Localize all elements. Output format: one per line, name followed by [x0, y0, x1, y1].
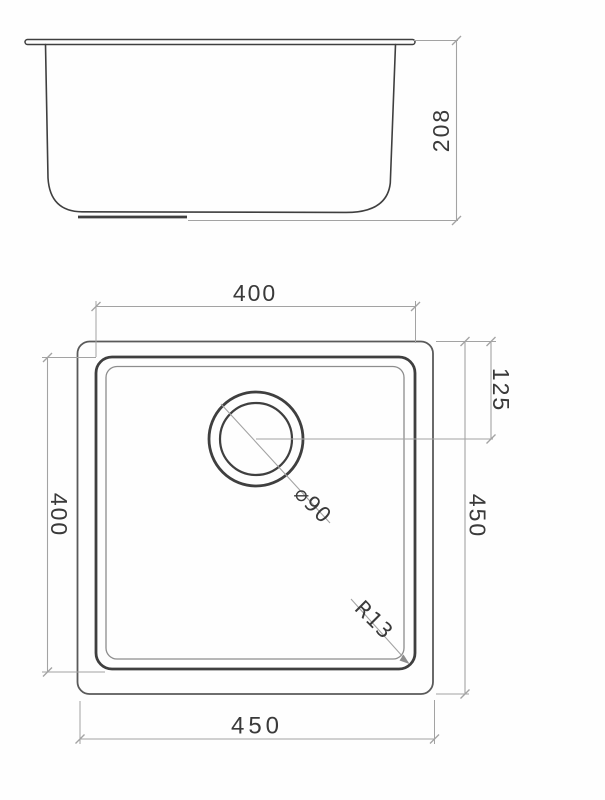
drain-offset-label: 125 [488, 368, 514, 412]
drawing-sheet: 208 [0, 0, 605, 800]
drain-diameter-label: ⌀90 [290, 482, 337, 529]
corner-radius-label: R13 [350, 596, 398, 644]
sink-body-outline [46, 45, 396, 213]
technical-drawing-canvas: 208 [0, 0, 605, 800]
depth-dimension-label: 208 [428, 108, 454, 152]
outer-width-label: 450 [231, 713, 283, 740]
outer-height-label: 450 [465, 494, 491, 538]
plan-view: 400 400 125 450 450 ⌀90 R13 [42, 280, 514, 744]
inner-depth-label: 400 [46, 493, 72, 537]
side-view: 208 [25, 36, 461, 225]
sink-rim [25, 40, 415, 45]
inner-width-label: 400 [233, 280, 277, 306]
